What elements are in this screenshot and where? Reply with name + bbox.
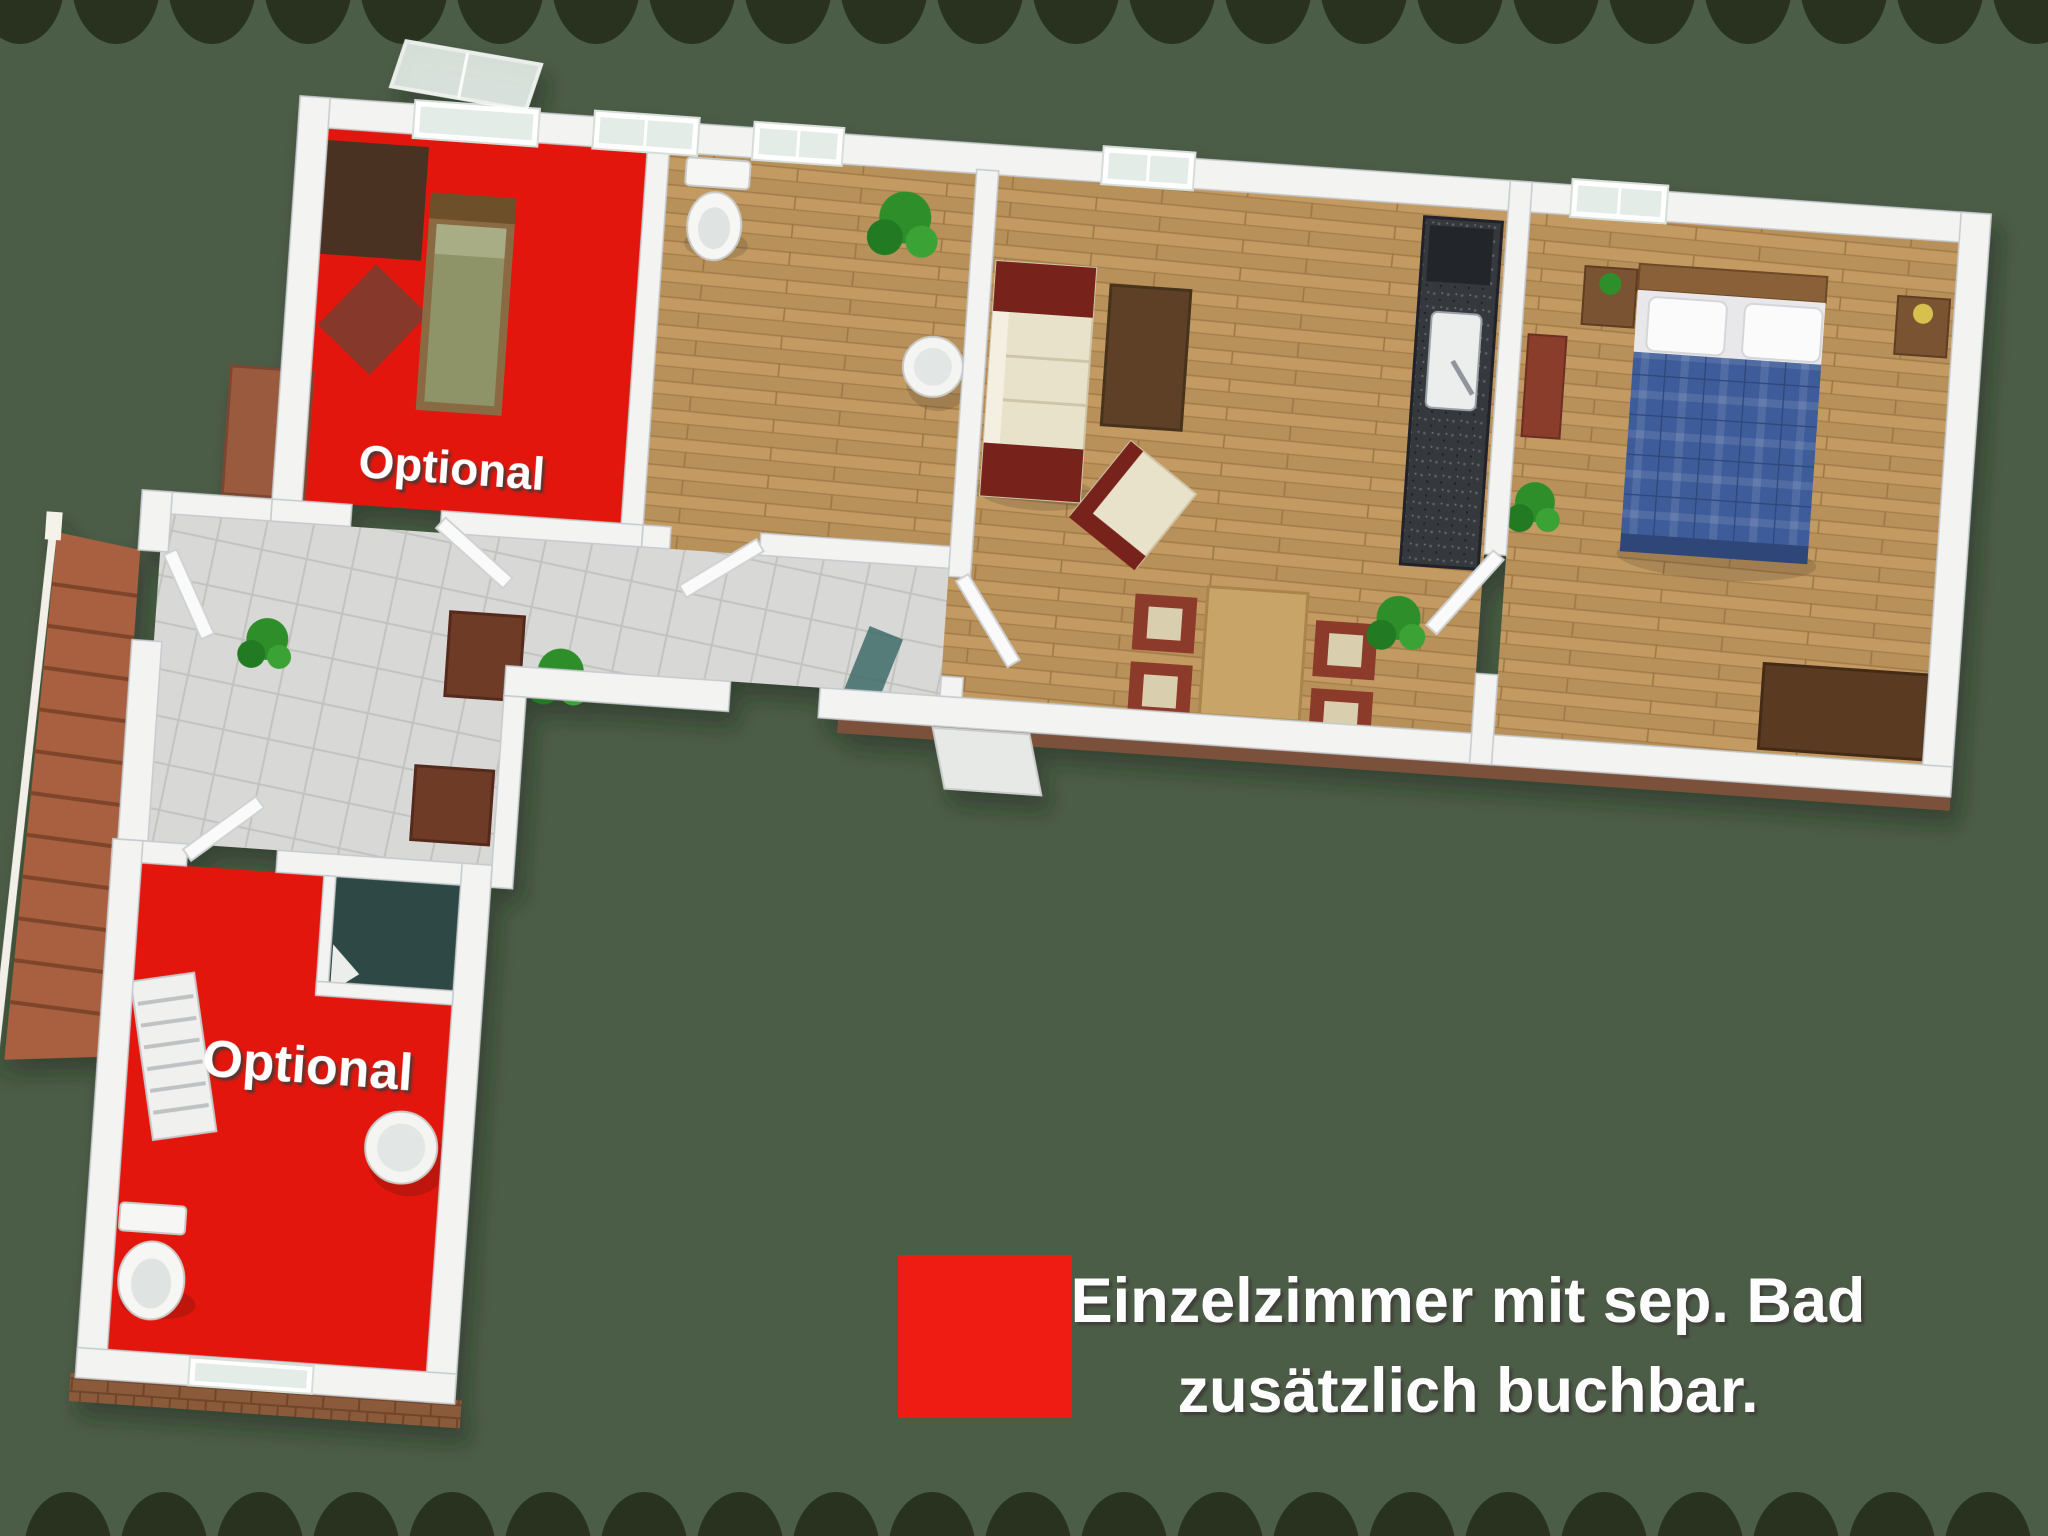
pillow <box>1646 297 1728 356</box>
floorplan-screenshot: Optional Optional Einzelzimmer mit sep. … <box>0 0 2048 1536</box>
legend-swatch <box>898 1255 1072 1418</box>
window <box>1570 179 1668 224</box>
legend-text-line1: Einzelzimmer mit sep. Bad <box>1071 1266 1866 1336</box>
bedroom-dresser <box>1758 664 1929 760</box>
blanket <box>1620 352 1821 565</box>
legend-text-line2: zusätzlich buchbar. <box>1177 1356 1758 1426</box>
hall-cabinet <box>411 766 494 845</box>
shower-area <box>328 876 461 999</box>
window <box>592 111 699 156</box>
desk <box>309 139 429 261</box>
floorplan-image: Optional Optional Einzelzimmer mit sep. … <box>0 0 2048 1536</box>
sideboard <box>1101 285 1191 430</box>
pillow <box>1742 303 1824 362</box>
window <box>1101 146 1195 190</box>
kitchen-hob <box>1426 225 1494 285</box>
porch-step <box>929 728 1046 796</box>
dining-table <box>1199 587 1308 722</box>
double-bed <box>1615 264 1836 587</box>
single-bed <box>416 192 517 415</box>
toilet-tank <box>119 1202 187 1235</box>
toilet-tank <box>685 157 751 189</box>
window <box>752 122 844 166</box>
bedroom-chair <box>1522 334 1567 438</box>
